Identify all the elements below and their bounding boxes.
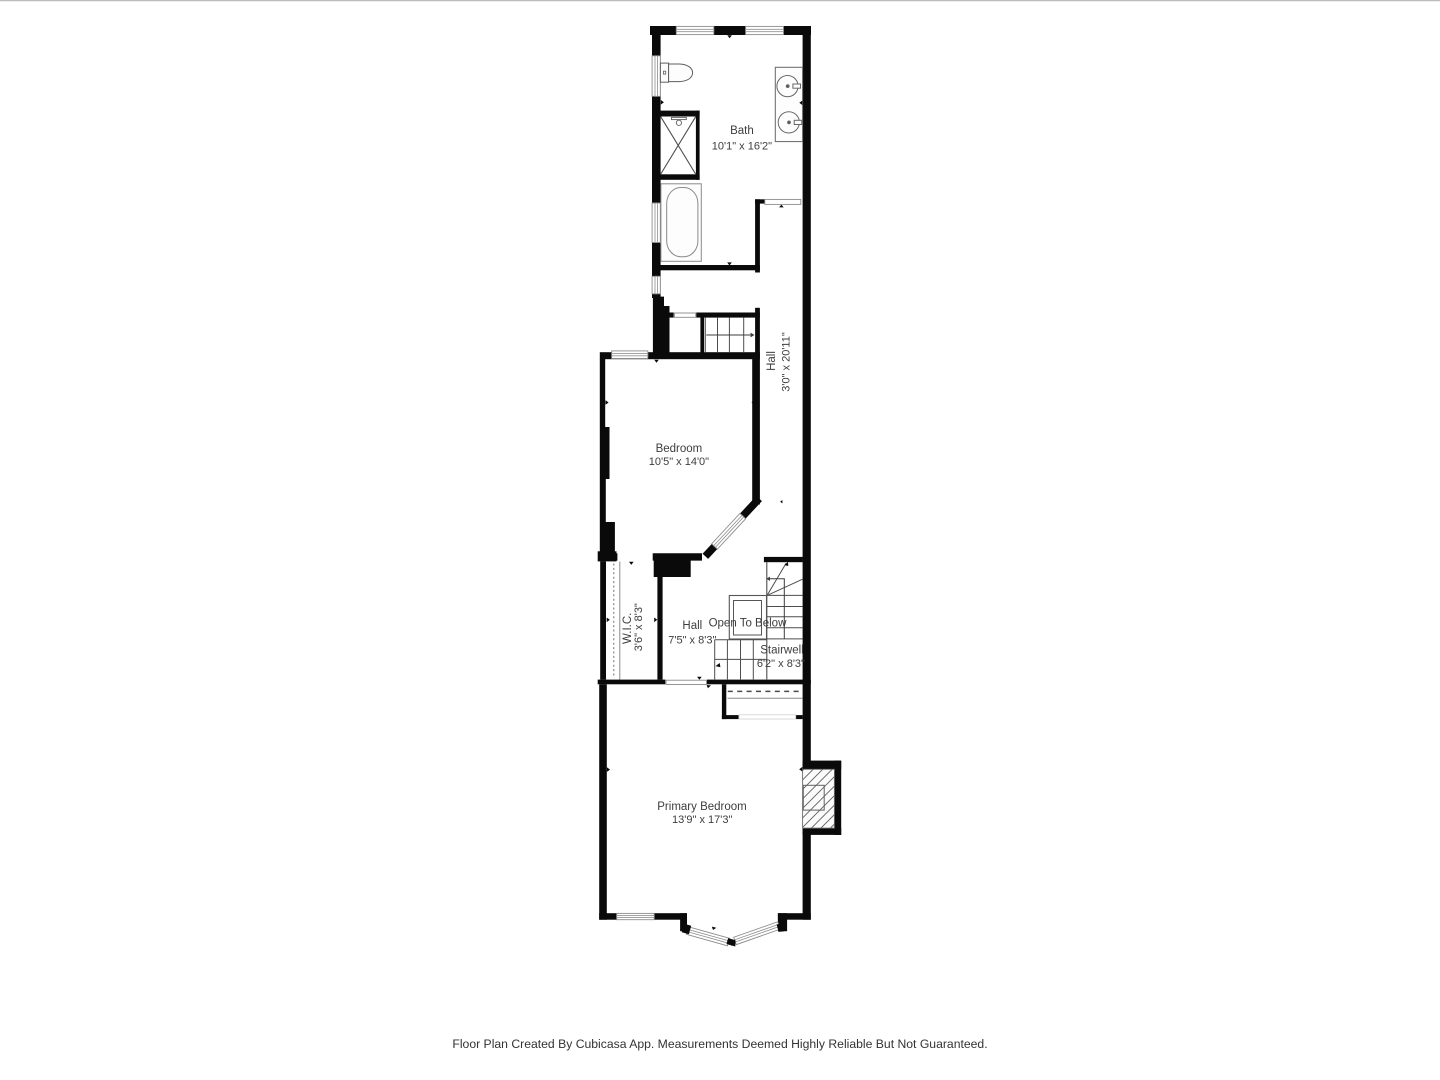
svg-text:Open To Below: Open To Below bbox=[709, 617, 787, 629]
svg-text:3'0" x 20'11": 3'0" x 20'11" bbox=[780, 332, 792, 392]
svg-text:6'2" x 8'3": 6'2" x 8'3" bbox=[757, 658, 805, 670]
svg-text:Bath: Bath bbox=[730, 125, 754, 137]
svg-text:Primary Bedroom: Primary Bedroom bbox=[657, 801, 746, 813]
svg-text:10'5" x 14'0": 10'5" x 14'0" bbox=[649, 456, 709, 468]
svg-text:Hall: Hall bbox=[682, 620, 702, 632]
svg-text:Hall: Hall bbox=[766, 351, 778, 371]
svg-text:Stairwell: Stairwell bbox=[760, 645, 803, 657]
svg-text:Bedroom: Bedroom bbox=[656, 443, 703, 455]
svg-text:7'5" x 8'3": 7'5" x 8'3" bbox=[668, 635, 716, 647]
svg-text:3'6" x 8'3": 3'6" x 8'3" bbox=[633, 603, 645, 651]
svg-text:10'1" x 16'2": 10'1" x 16'2" bbox=[712, 141, 772, 153]
svg-text:13'9" x 17'3": 13'9" x 17'3" bbox=[672, 814, 732, 826]
